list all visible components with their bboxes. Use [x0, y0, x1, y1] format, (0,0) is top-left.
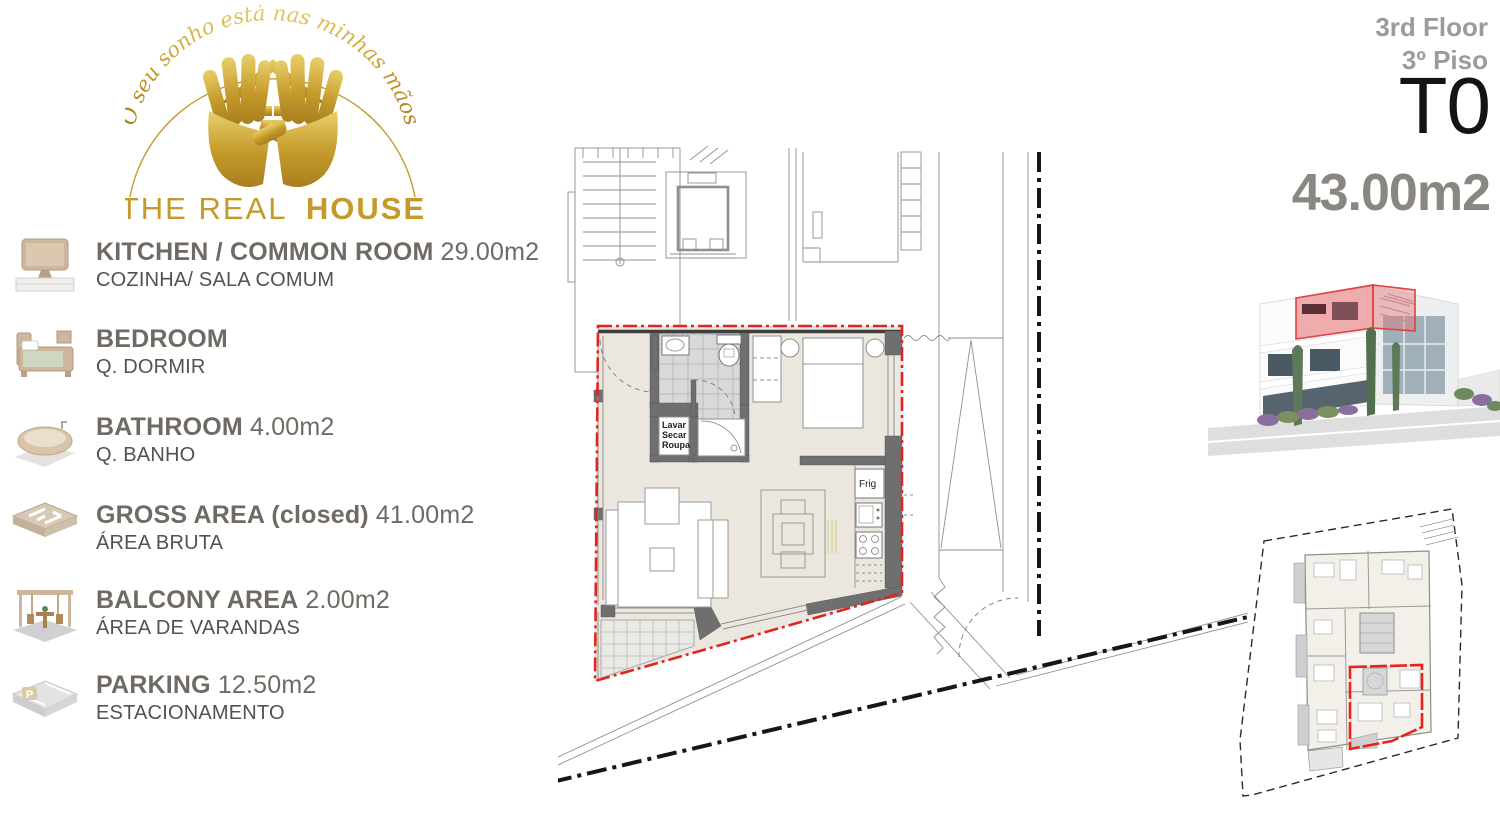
- tv-icon: [8, 233, 82, 297]
- wardrobe: [753, 336, 781, 402]
- legend-subtitle: COZINHA/ SALA COMUM: [96, 269, 539, 292]
- legend-title: GROSS AREA (closed)41.00m2: [96, 502, 475, 529]
- legend-item-bathroom: BATHROOM4.00m2 Q. BANHO: [8, 407, 335, 473]
- elevator: [666, 172, 746, 258]
- svg-text:P: P: [26, 689, 33, 701]
- legend-subtitle: Q. DORMIR: [96, 356, 235, 379]
- laundry-closet: Lavar Secar Roupa: [659, 417, 691, 455]
- floor-label-en: 3rd Floor: [1188, 12, 1488, 43]
- brand-logo: O seu sonho está nas minhas mãos THE REA…: [125, 5, 425, 240]
- legend-subtitle: ÁREA DE VARANDAS: [96, 617, 390, 640]
- sofa: [606, 488, 728, 607]
- legend-item-parking: P PARKING12.50m2 ESTACIONAMENTO: [8, 665, 317, 731]
- kitchen-sink: [856, 503, 882, 527]
- cypress-tree: [1366, 327, 1376, 416]
- legend-title: PARKING12.50m2: [96, 672, 317, 699]
- brochure-page: O seu sonho está nas minhas mãos THE REA…: [0, 0, 1500, 821]
- legend-item-bedroom: BEDROOM Q. DORMIR: [8, 319, 235, 385]
- sink: [662, 333, 689, 355]
- legend-subtitle: Q. BANHO: [96, 444, 335, 467]
- parking-icon: P: [8, 666, 82, 730]
- bathtub-icon: [8, 408, 82, 472]
- site-plan: [1222, 505, 1494, 821]
- legend-title: KITCHEN / COMMON ROOM29.00m2: [96, 239, 539, 266]
- svg-text:Secar: Secar: [662, 430, 687, 440]
- unit-type: T0: [1190, 60, 1490, 152]
- floorplan-icon: [8, 496, 82, 560]
- building-3d-render: [1208, 254, 1500, 460]
- toilet: [717, 335, 741, 366]
- cypress-tree: [1392, 342, 1400, 411]
- legend-title: BALCONY AREA2.00m2: [96, 587, 390, 614]
- legend-title: BATHROOM4.00m2: [96, 414, 335, 441]
- svg-text:Frig: Frig: [859, 479, 876, 490]
- balcony-icon: [8, 581, 82, 645]
- legend-title: BEDROOM: [96, 326, 235, 353]
- legend-item-kitchen: KITCHEN / COMMON ROOM29.00m2 COZINHA/ SA…: [8, 232, 539, 298]
- svg-text:Lavar: Lavar: [662, 420, 687, 430]
- bed-icon: [8, 320, 82, 384]
- hands-house-icon: [201, 54, 344, 187]
- floor-plan-drawing: Lavar Secar Roupa: [558, 140, 1248, 821]
- legend-item-gross-area: GROSS AREA (closed)41.00m2 ÁREA BRUTA: [8, 495, 475, 561]
- legend-item-balcony: BALCONY AREA2.00m2 ÁREA DE VARANDAS: [8, 580, 390, 646]
- legend-subtitle: ÁREA BRUTA: [96, 532, 475, 555]
- svg-text:Roupa: Roupa: [662, 440, 691, 450]
- shower: [698, 419, 745, 456]
- legend-subtitle: ESTACIONAMENTO: [96, 702, 317, 725]
- brand-name: THE REAL HOUSE: [125, 191, 425, 226]
- stove: [856, 532, 882, 558]
